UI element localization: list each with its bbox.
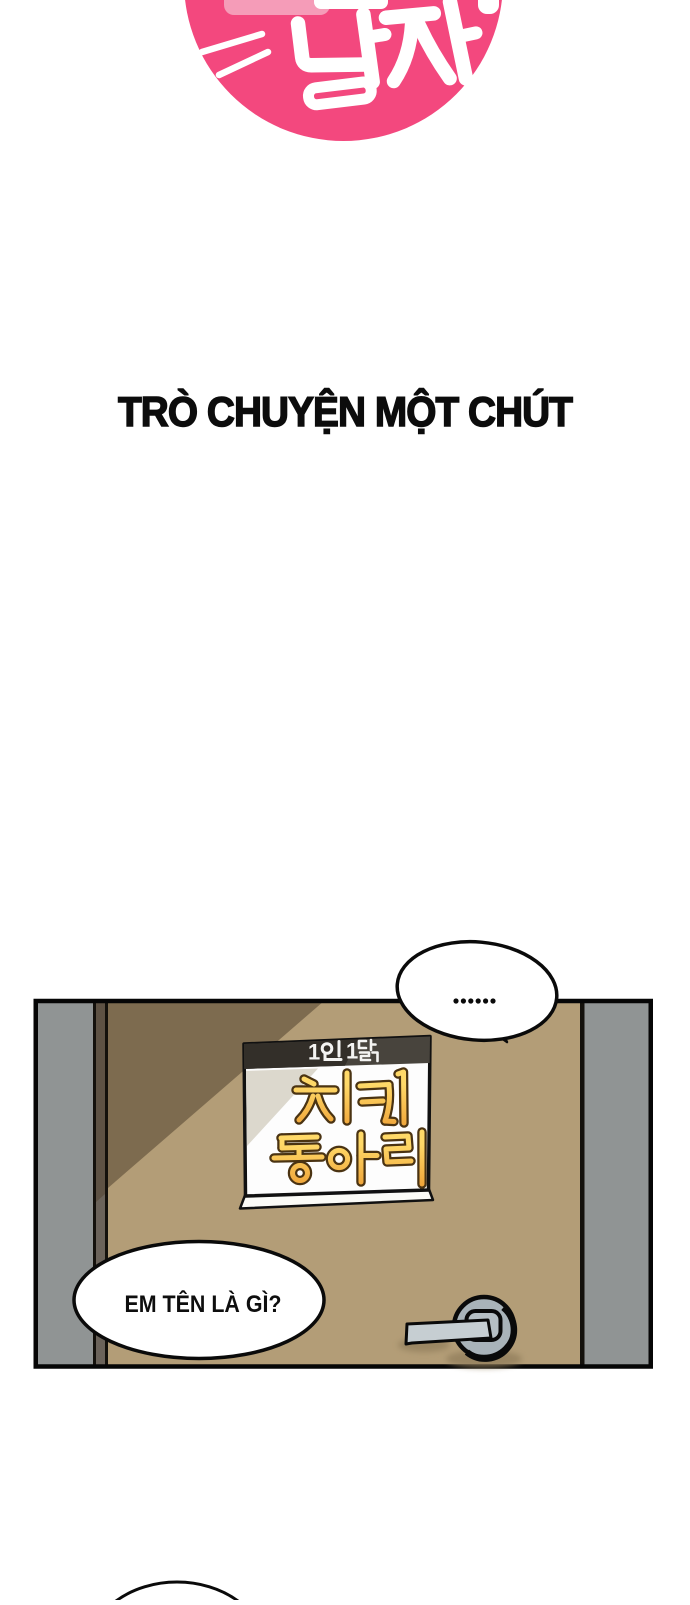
svg-text:1: 1 xyxy=(346,1039,358,1064)
svg-text:TRÒ CHUYỆN MỘT CHÚT: TRÒ CHUYỆN MỘT CHÚT xyxy=(118,387,573,435)
svg-text:EM TÊN LÀ GÌ?: EM TÊN LÀ GÌ? xyxy=(125,1290,282,1318)
svg-text:1: 1 xyxy=(308,1040,320,1065)
